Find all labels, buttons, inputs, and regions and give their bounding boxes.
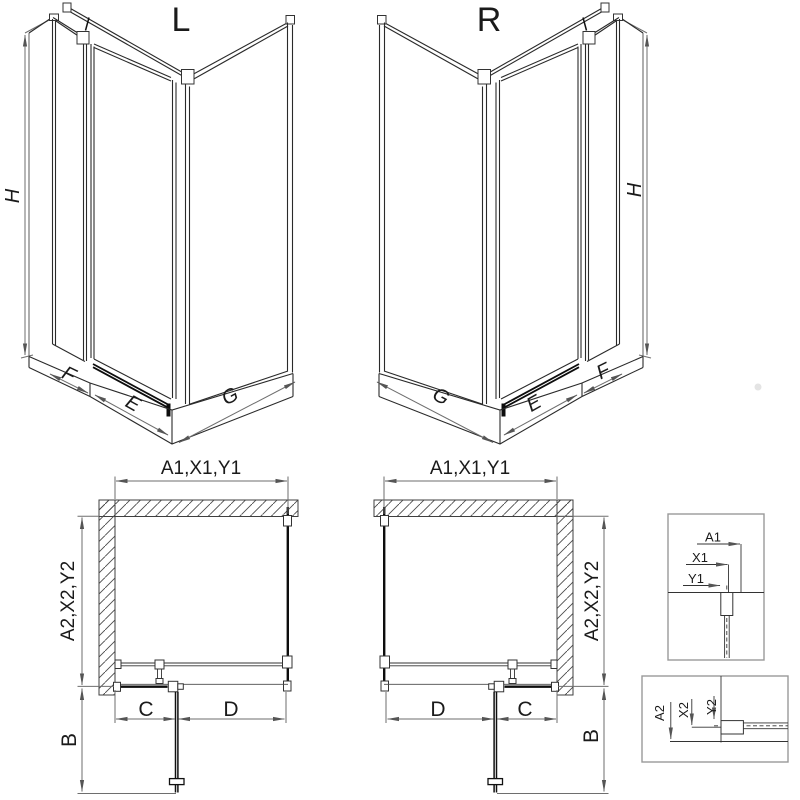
detail-width-total-label: A1 bbox=[705, 530, 721, 545]
technical-drawing-page: L H F E G R H F E G A1,X1,Y1 A2,X2,Y2 B … bbox=[0, 0, 800, 800]
dim-label-door-right: E bbox=[523, 391, 546, 417]
dim-label-side-left: F bbox=[58, 362, 80, 388]
plan-left-fixed-label: C bbox=[138, 698, 153, 721]
plan-right-door-open-label: B bbox=[580, 729, 603, 743]
wall-hatch-top-left-plan bbox=[99, 500, 298, 517]
dim-label-height-right: H bbox=[624, 182, 646, 197]
plan-right-width-label: A1,X1,Y1 bbox=[430, 458, 510, 479]
plan-view-left: A1,X1,Y1 A2,X2,Y2 B C D bbox=[58, 458, 298, 794]
iso-view-right: R H F E G bbox=[377, 1, 651, 444]
plan-left-depth-label: A2,X2,Y2 bbox=[58, 561, 79, 641]
shower-enclosure-diagram: L H F E G R H F E G A1,X1,Y1 A2,X2,Y2 B … bbox=[0, 0, 800, 800]
plan-right-fixed-label: C bbox=[517, 698, 532, 721]
plan-right-door-label: D bbox=[430, 698, 445, 721]
dim-label-height-left: H bbox=[2, 188, 24, 203]
detail-box-width: A1 X1 Y1 bbox=[668, 514, 764, 660]
plan-right-depth-label: A2,X2,Y2 bbox=[582, 561, 603, 641]
wall-hatch-side-left-plan bbox=[99, 500, 115, 695]
plan-left-depth-dimensions bbox=[78, 516, 177, 793]
detail-depth-total-label: A2 bbox=[652, 705, 667, 721]
plan-structure-left bbox=[114, 477, 293, 793]
plan-structure-right bbox=[380, 477, 559, 793]
variant-label-left: L bbox=[172, 1, 191, 39]
detail-box-depth: A2 X2 Y2 bbox=[642, 676, 788, 762]
detail-width-glass-label: Y1 bbox=[688, 571, 704, 586]
plan-left-door-label: D bbox=[223, 698, 238, 721]
wall-hatch-side-right-plan bbox=[557, 500, 573, 695]
detail-width-profile-label: X1 bbox=[692, 550, 708, 565]
detail-depth-profile-label: X2 bbox=[676, 702, 691, 718]
plan-right-depth-dimensions bbox=[497, 516, 609, 793]
plan-left-width-label: A1,X1,Y1 bbox=[161, 458, 241, 479]
watermark-dot bbox=[755, 384, 762, 391]
variant-label-right: R bbox=[477, 1, 502, 39]
dim-label-side-right: F bbox=[593, 358, 615, 384]
plan-view-right: A1,X1,Y1 A2,X2,Y2 B D C bbox=[374, 458, 609, 794]
iso-view-left: L H F E G bbox=[2, 1, 295, 444]
wall-hatch-top-right-plan bbox=[374, 500, 573, 517]
detail-depth-glass-label: Y2 bbox=[704, 699, 719, 715]
plan-left-door-open-label: B bbox=[58, 733, 81, 747]
